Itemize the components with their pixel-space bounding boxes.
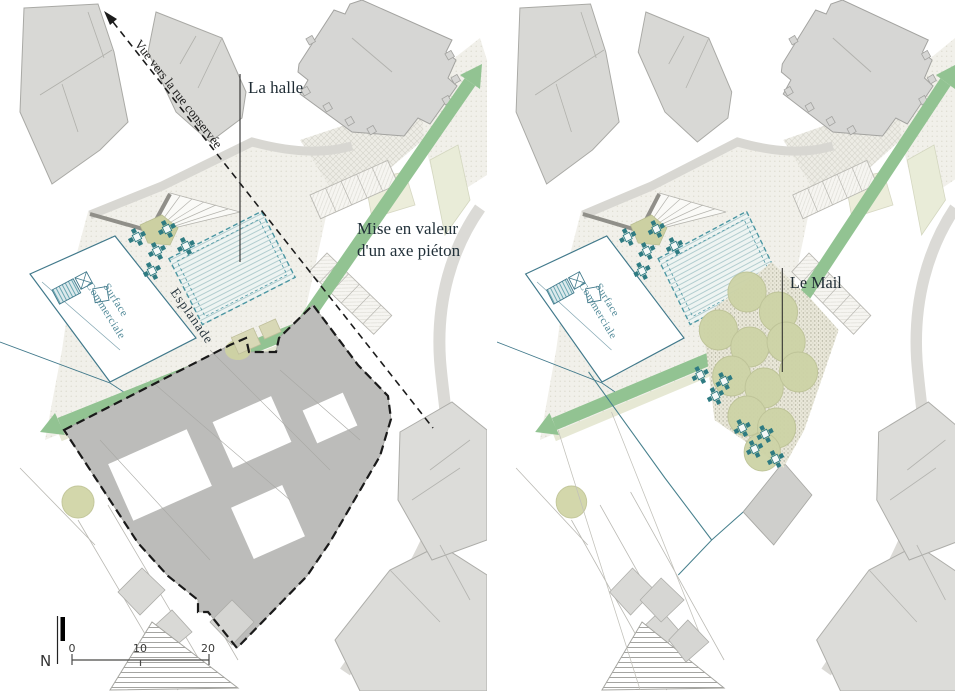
left-plan-panel: Vue vers la rue conservée La halle Espla…: [0, 0, 487, 691]
scale-tick-10: 10: [133, 642, 147, 655]
axis-note: Mise en valeur d'un axe piéton: [357, 219, 461, 260]
axis-note-line2: d'un axe piéton: [357, 241, 461, 260]
axis-note-line1: Mise en valeur: [357, 219, 458, 238]
scale-tick-20: 20: [201, 642, 215, 655]
halle-label: La halle: [248, 78, 303, 97]
scale-tick-0: 0: [69, 642, 76, 655]
mail-label: Le Mail: [790, 273, 842, 292]
view-arrowhead: [104, 11, 117, 25]
north-label: N: [40, 652, 51, 670]
urban-plan-figure: Vue vers la rue conservée La halle Espla…: [0, 0, 955, 691]
north-indicator-bar: [61, 617, 66, 641]
right-plan-panel: Le Mail: [497, 0, 955, 691]
